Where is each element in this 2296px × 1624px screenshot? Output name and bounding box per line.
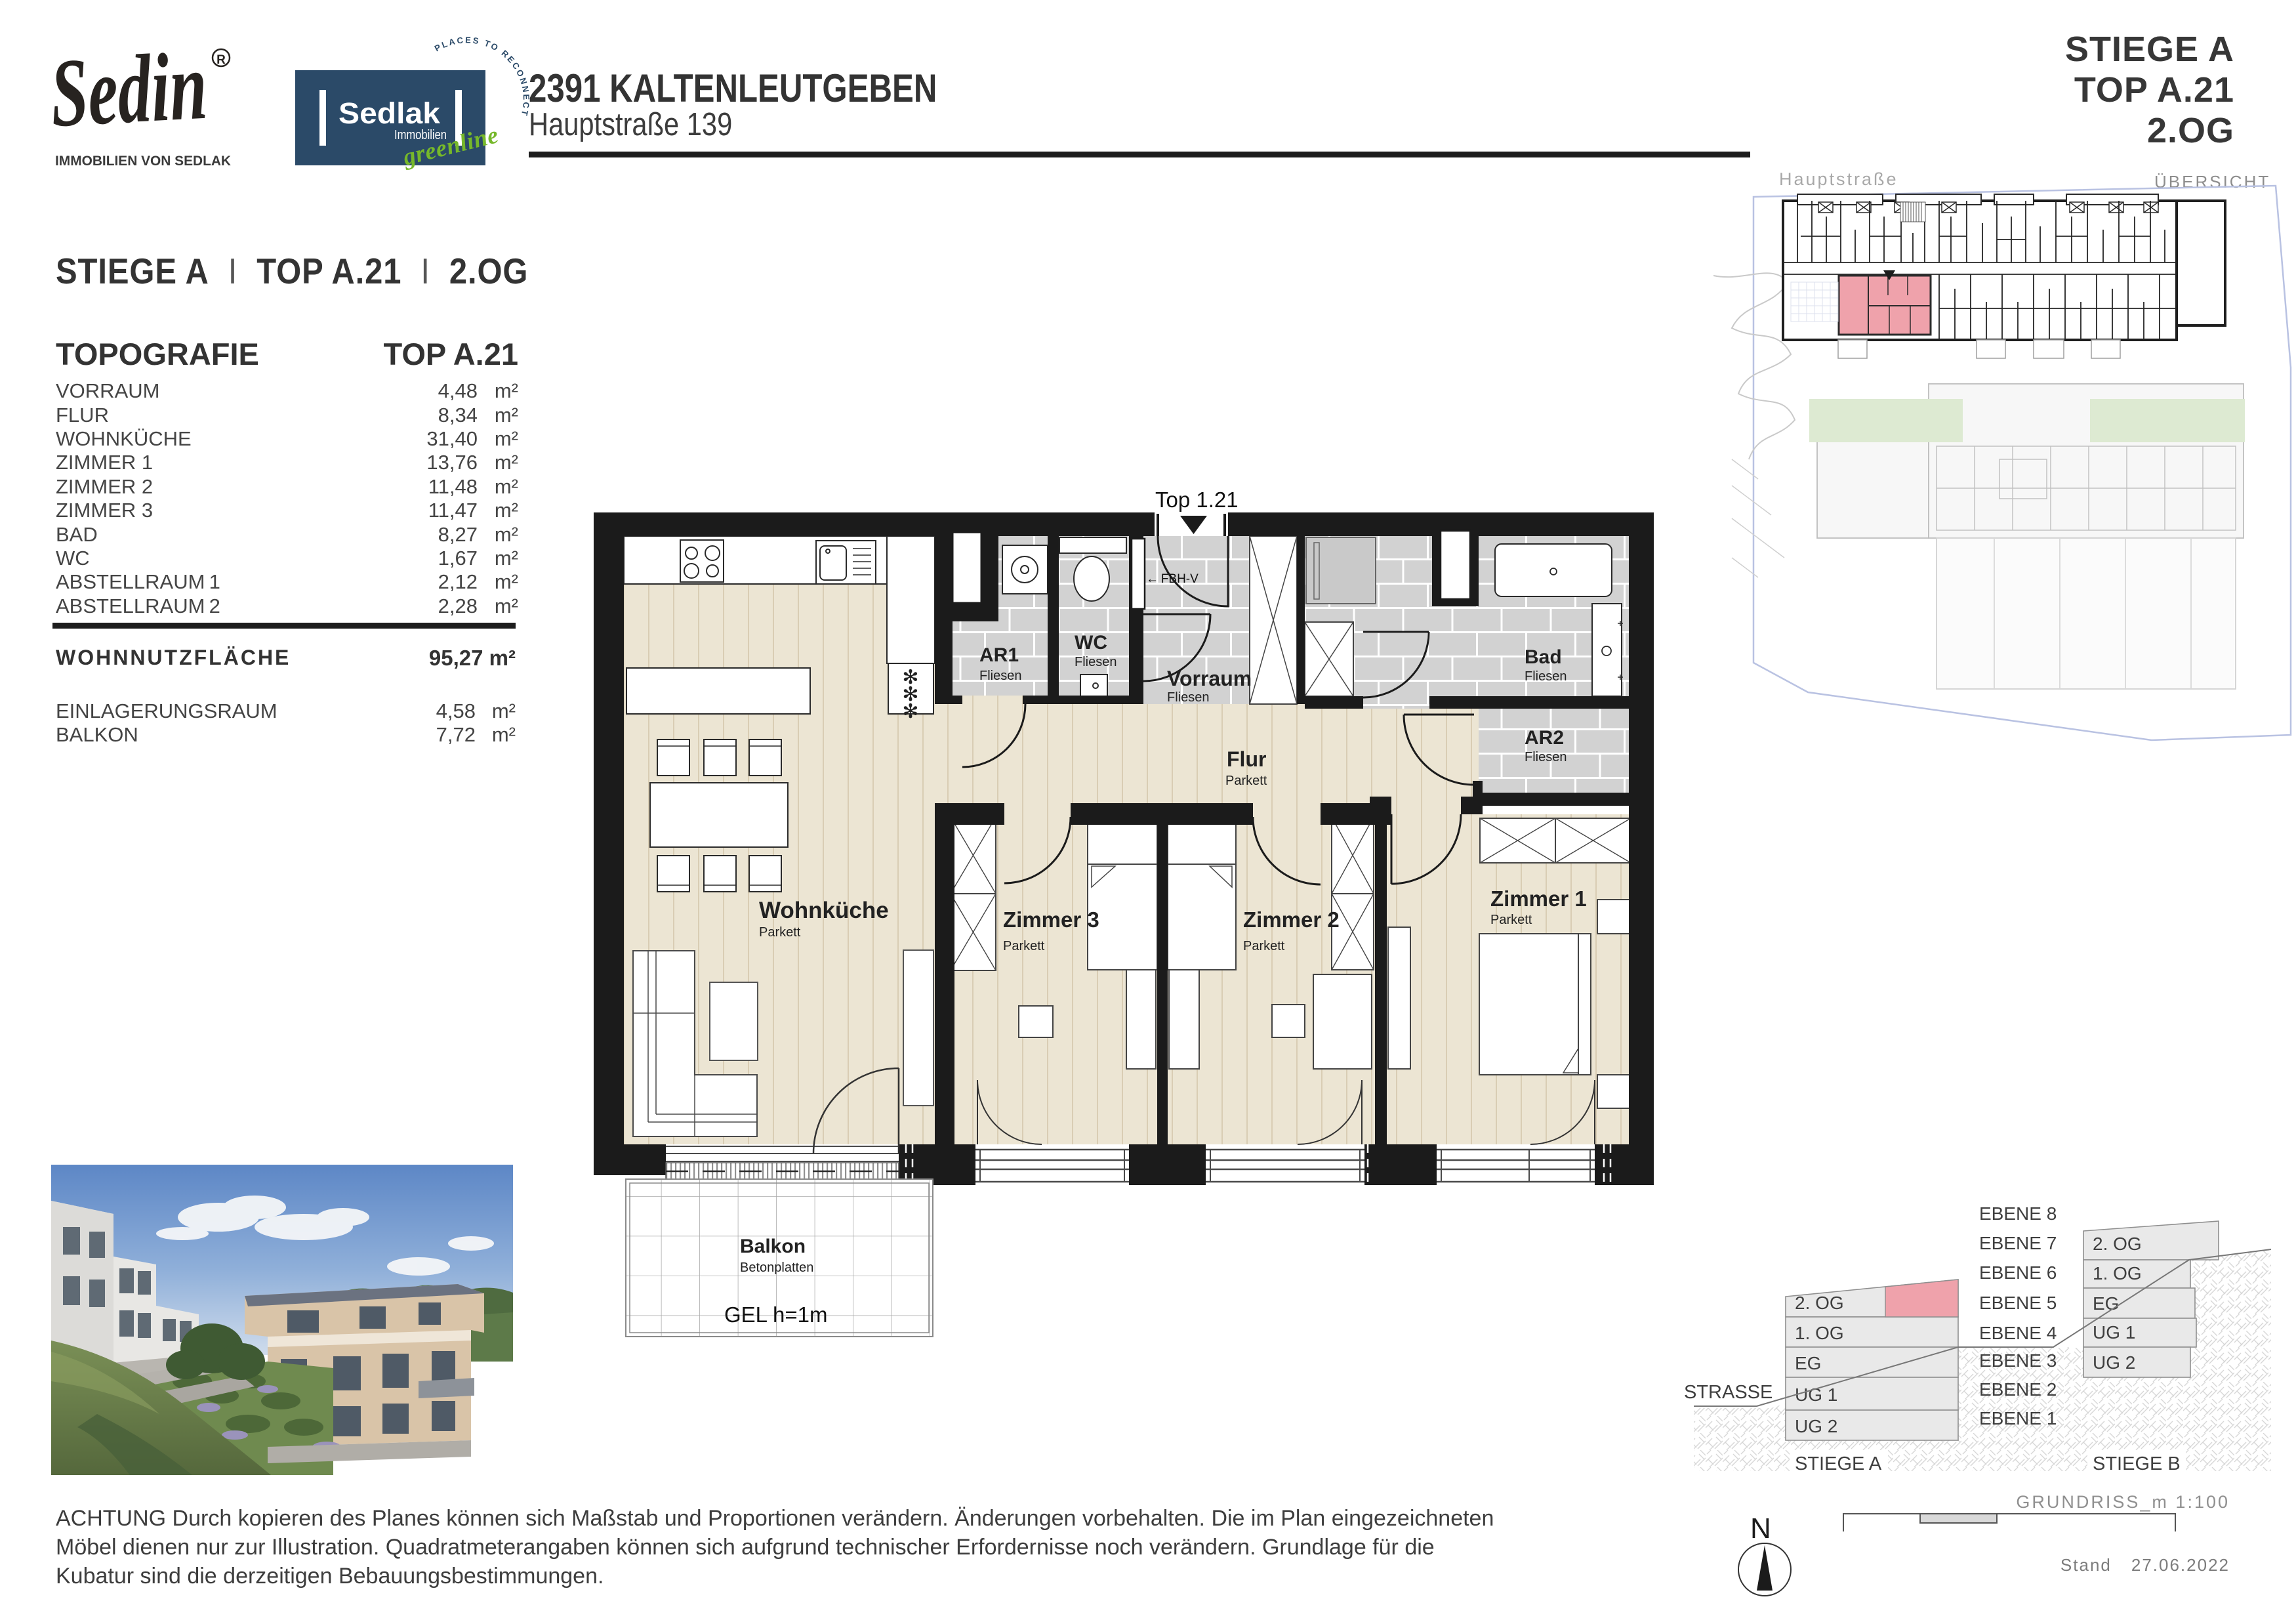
svg-text:EBENE 5: EBENE 5 [1979,1293,2057,1313]
svg-text:AR1: AR1 [979,644,1019,666]
svg-text:1. OG: 1. OG [1795,1323,1844,1343]
svg-text:2. OG: 2. OG [1795,1293,1844,1313]
svg-text:2. OG: 2. OG [2093,1234,2142,1254]
svg-text:WC: WC [1075,632,1107,654]
svg-text:Parkett: Parkett [1490,913,1532,927]
svg-text:R: R [216,53,226,67]
svg-text:EBENE 7: EBENE 7 [1979,1233,2057,1253]
svg-text:EBENE 4: EBENE 4 [1979,1323,2057,1343]
svg-text:EG: EG [2093,1293,2119,1314]
svg-text:UG 1: UG 1 [2093,1322,2135,1343]
svg-text:UG 2: UG 2 [1795,1416,1837,1436]
svg-text:Vorraum: Vorraum [1167,667,1252,690]
svg-text:← FBH-V: ← FBH-V [1146,572,1199,586]
svg-text:Flur: Flur [1227,747,1266,771]
svg-text:Fliesen: Fliesen [979,669,1021,683]
svg-text:Sedin: Sedin [48,32,209,148]
svg-text:EBENE 3: EBENE 3 [1979,1350,2057,1371]
svg-text:Fliesen: Fliesen [1525,669,1567,684]
svg-text:UG 2: UG 2 [2093,1352,2135,1373]
svg-text:1. OG: 1. OG [2093,1263,2142,1283]
svg-text:Fliesen: Fliesen [1525,750,1567,764]
svg-text:Fliesen: Fliesen [1075,655,1117,669]
svg-text:STIEGE A: STIEGE A [1795,1453,1882,1474]
svg-text:STIEGE B: STIEGE B [2093,1453,2181,1474]
svg-text:N: N [1750,1512,1771,1545]
svg-text:EBENE 1: EBENE 1 [1979,1408,2057,1428]
svg-text:✻: ✻ [902,701,918,722]
svg-text:Parkett: Parkett [759,925,801,940]
svg-text:Parkett: Parkett [1225,774,1267,788]
svg-text:Zimmer 2: Zimmer 2 [1243,907,1340,932]
svg-text:Zimmer 3: Zimmer 3 [1003,907,1099,932]
svg-text:Sedlak: Sedlak [338,96,441,130]
svg-text:GEL h=1m: GEL h=1m [724,1302,827,1327]
svg-text:EBENE 6: EBENE 6 [1979,1262,2057,1283]
svg-text:Stand 27.06.2022: Stand 27.06.2022 [2060,1555,2230,1575]
svg-text:Zimmer 1: Zimmer 1 [1490,886,1587,911]
svg-text:IMMOBILIEN VON SEDLAK: IMMOBILIEN VON SEDLAK [55,154,231,169]
svg-text:Top 1.21: Top 1.21 [1155,488,1239,512]
svg-text:Parkett: Parkett [1243,939,1285,953]
svg-text:Wohnküche: Wohnküche [759,898,889,923]
svg-text:Betonplatten: Betonplatten [740,1260,813,1275]
svg-text:Balkon: Balkon [740,1236,806,1257]
svg-text:AR2: AR2 [1525,727,1564,749]
svg-text:EG: EG [1795,1353,1821,1373]
svg-text:UG 1: UG 1 [1795,1385,1837,1405]
svg-text:GRUNDRISS_m 1:100: GRUNDRISS_m 1:100 [2016,1492,2230,1512]
svg-text:EBENE 8: EBENE 8 [1979,1203,2057,1224]
svg-text:Fliesen: Fliesen [1167,690,1209,705]
svg-text:STRASSE: STRASSE [1684,1382,1773,1403]
svg-text:EBENE 2: EBENE 2 [1979,1379,2057,1400]
svg-text:Parkett: Parkett [1003,939,1045,953]
svg-text:Bad: Bad [1525,646,1562,668]
